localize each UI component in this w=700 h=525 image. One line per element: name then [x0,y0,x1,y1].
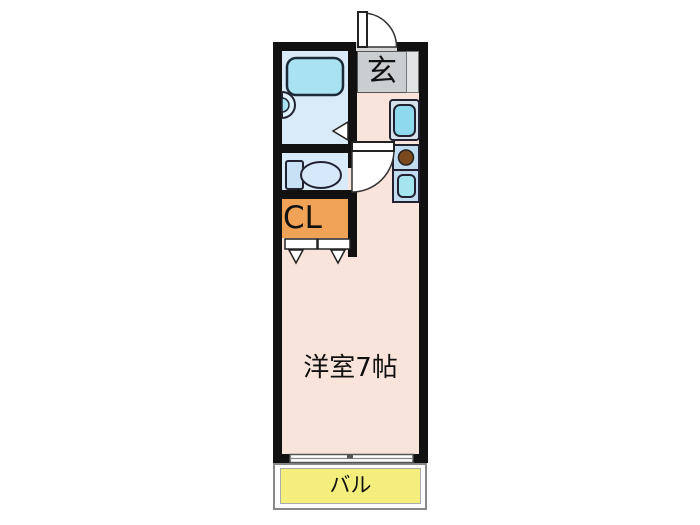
closet-label: CL [283,203,349,234]
entrance-door-leaf-icon [358,12,367,47]
bifold-arrow-right-icon [331,250,345,263]
bifold-panel-left-icon [285,239,317,249]
window-latch-icon [347,455,353,459]
bifold-arrow-left-icon [289,250,303,263]
fixtures-layer [0,0,700,525]
bifold-panel-right-icon [318,239,350,249]
toilet-bowl-icon [301,162,341,188]
balcony-label: バル [280,475,421,496]
interior-door-swing-icon [352,150,394,192]
kitchen-sink-icon [398,175,415,197]
stove-burner-icon [399,150,414,165]
floor-plan: 玄 CL 洋室7帖 バル [0,0,700,525]
bathroom-door-mark-icon [333,122,348,140]
interior-door-leaf-icon [352,142,394,151]
main-room-label: 洋室7帖 [282,355,419,381]
washing-machine-icon [394,105,415,136]
bathtub-icon [287,58,343,95]
washbasin-inner-icon [282,98,289,112]
entrance-label: 玄 [357,57,407,87]
